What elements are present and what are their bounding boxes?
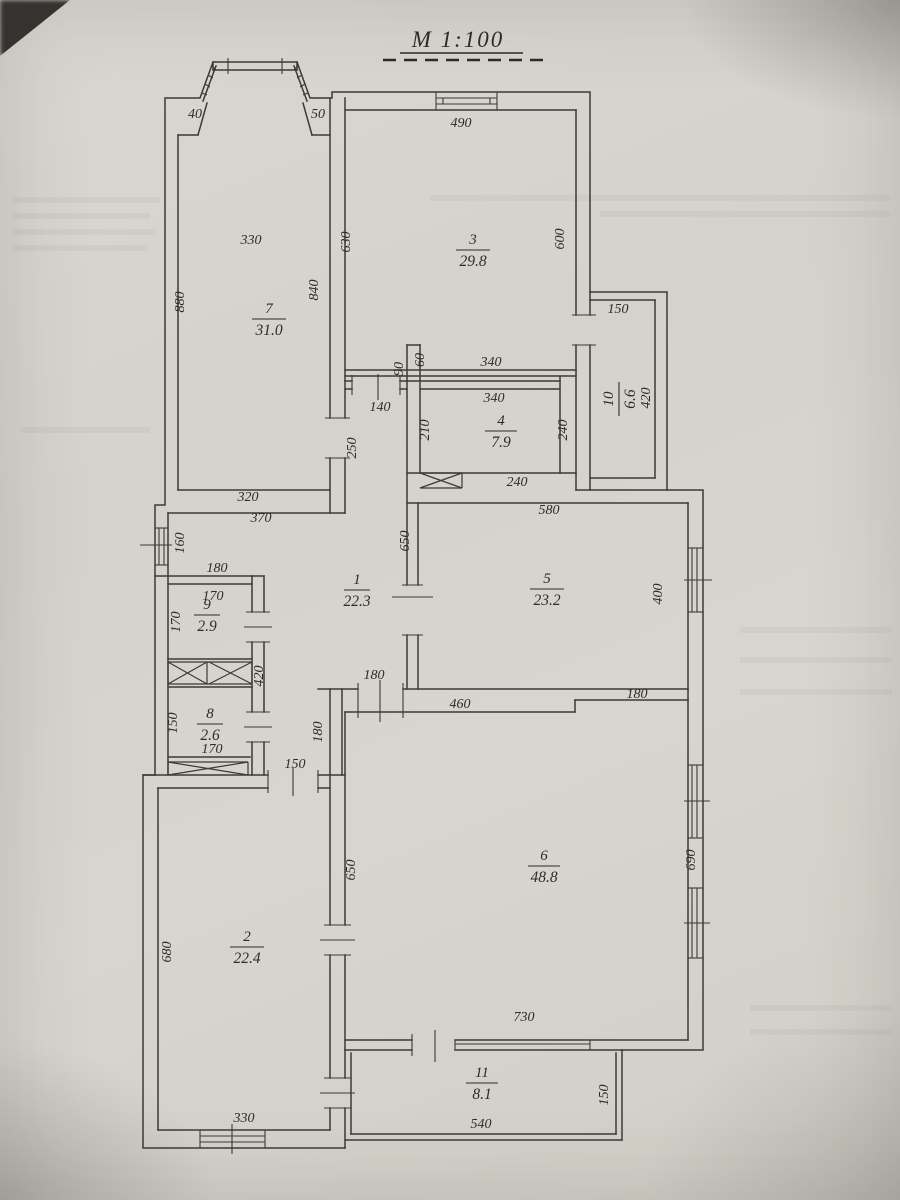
photo-shade-top-right [680,0,900,120]
photographed-floor-plan-page: M 1:100 [0,0,900,1200]
dim-label: 180 [364,668,385,683]
photo-shade-bottom-left [0,1040,220,1200]
dim-label: 150 [597,1085,612,1106]
dim-label: 540 [471,1117,492,1132]
dim-label: 170 [169,612,184,633]
room-label-8: 8 2.6 [197,706,223,744]
dim-label: 240 [507,475,528,490]
dim-label: 600 [553,229,568,250]
room-label-5: 5 23.2 [530,571,564,609]
dim-label: 150 [285,757,306,772]
dim-label: 60 [413,353,428,367]
room-area: 2.6 [200,727,220,744]
dim-label: 340 [480,355,502,370]
room-area: 22.4 [233,950,260,967]
dim-label: 90 [392,362,407,376]
dim-label: 150 [166,713,181,734]
room-number: 3 [468,232,477,248]
dim-label: 320 [237,490,259,505]
dim-label: 210 [418,420,433,441]
room-label-2: 2 22.4 [230,929,264,967]
room-area: 23.2 [533,592,560,609]
dim-label: 40 [188,107,202,122]
room-area: 6.6 [622,389,639,409]
dim-label: 140 [370,400,391,415]
room-number: 6 [540,848,548,864]
room-number: 2 [243,929,251,945]
dim-label: 490 [451,116,472,131]
room-label-1: 1 22.3 [343,572,370,610]
dim-label: 650 [398,531,413,552]
room-area: 29.8 [459,253,486,270]
dim-label: 880 [173,292,188,313]
room-label-10: 10 6.6 [601,382,639,416]
room-number: 8 [206,706,214,722]
dim-label: 420 [639,388,654,409]
dim-label: 330 [240,233,262,248]
dim-label: 240 [556,420,571,441]
room-number: 10 [601,391,617,407]
photo-shade-bottom-right [640,1000,900,1200]
windows [140,58,712,1154]
dim-label: 690 [684,850,699,871]
dim-label: 160 [173,533,188,554]
dim-label: 420 [252,666,267,687]
dim-label: 730 [514,1010,535,1025]
room-area: 31.0 [254,322,282,339]
room-area: 22.3 [343,593,370,610]
paper-ghosting [12,198,892,1032]
room-label-11: 11 8.1 [466,1065,498,1103]
dim-label: 50 [311,107,325,122]
dimension-labels: 40 50 490 330 630 880 840 600 150 420 90… [160,107,699,1132]
dim-label: 370 [250,511,272,526]
room-number: 4 [497,413,505,429]
room-number: 11 [475,1065,489,1081]
title-block: M 1:100 [383,27,548,60]
dim-label: 150 [608,302,629,317]
room-area: 2.9 [197,618,217,635]
room-number: 9 [203,597,211,613]
dim-label: 680 [160,942,175,963]
room-number: 7 [265,301,274,317]
dim-label: 400 [651,584,666,605]
room-label-6: 6 48.8 [528,848,560,886]
room-area: 8.1 [472,1086,491,1103]
scale-title: M 1:100 [411,27,505,52]
dim-label: 330 [233,1111,255,1126]
dim-label: 340 [483,391,505,406]
dim-label: 250 [345,438,360,459]
dim-label: 580 [539,503,560,518]
dim-label: 180 [627,687,648,702]
room-area: 48.8 [530,869,557,886]
dim-label: 650 [344,860,359,881]
dim-label: 180 [311,722,326,743]
dim-label: 180 [207,561,228,576]
room-number: 5 [543,571,551,587]
room-label-3: 3 29.8 [456,232,490,270]
room-number: 1 [353,572,361,588]
room-label-7: 7 31.0 [252,301,286,339]
dim-label: 170 [202,742,223,757]
dim-label: 840 [307,280,322,301]
dim-label: 630 [339,232,354,253]
room-area: 7.9 [491,434,511,451]
dim-label: 460 [450,697,471,712]
room-label-4: 4 7.9 [485,413,517,451]
walls [143,62,703,1148]
